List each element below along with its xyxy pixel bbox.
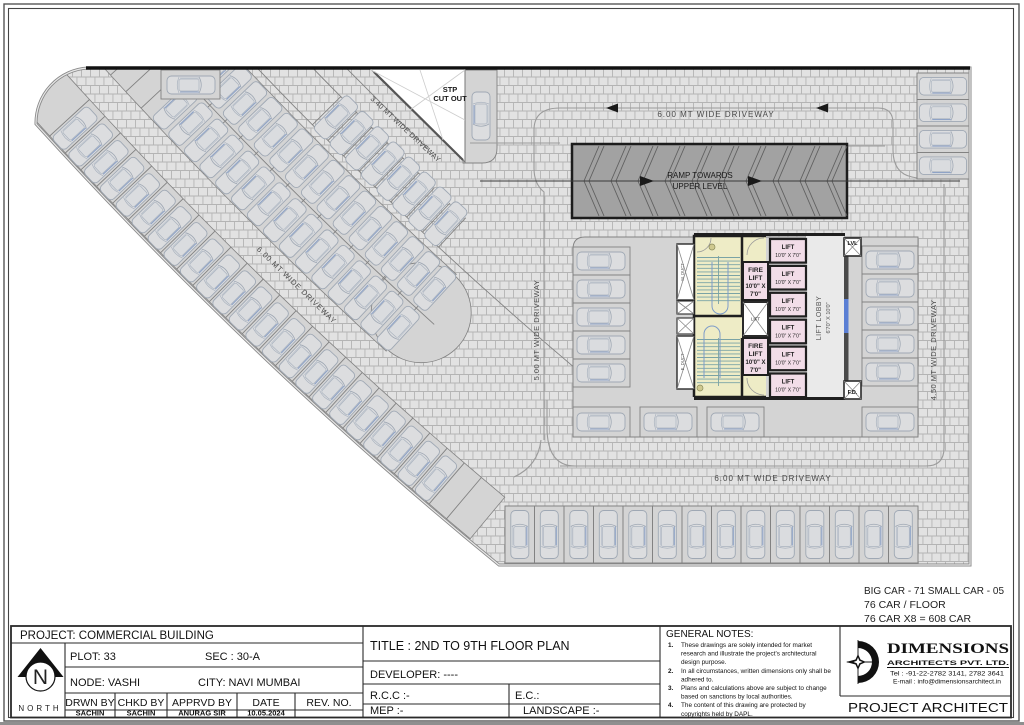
svg-text:10'0" X 7'0": 10'0" X 7'0" (775, 307, 801, 313)
svg-text:2.: 2. (668, 668, 674, 675)
svg-text:10'0" X 7'0": 10'0" X 7'0" (775, 253, 801, 259)
svg-text:Tel : -91-22-2782 3141, 2782 3: Tel : -91-22-2782 3141, 2782 3641 (890, 671, 1005, 678)
svg-text:F.D.: F.D. (848, 390, 858, 396)
svg-text:NORTH: NORTH (18, 704, 61, 713)
svg-text:LANDSCAPE :-: LANDSCAPE :- (523, 705, 600, 717)
svg-text:Plans and calculations above a: Plans and calculations above are subject… (681, 685, 827, 692)
svg-text:4.: 4. (668, 702, 674, 709)
svg-text:LIFT LOBBY: LIFT LOBBY (816, 296, 823, 341)
svg-text:CITY: NAVI MUMBAI: CITY: NAVI MUMBAI (198, 677, 300, 689)
svg-text:FIRE: FIRE (748, 343, 763, 350)
svg-text:PROJECT: COMMERCIAL BUILDING: PROJECT: COMMERCIAL BUILDING (20, 630, 214, 642)
svg-text:CHKD BY: CHKD BY (118, 697, 165, 709)
svg-text:SACHIN: SACHIN (127, 709, 156, 718)
svg-text:DIMENSIONS: DIMENSIONS (887, 641, 1009, 657)
svg-text:3.: 3. (668, 685, 674, 692)
svg-text:6.00 MT WIDE DRIVEWAY: 6.00 MT WIDE DRIVEWAY (657, 110, 774, 119)
svg-text:10'0" X: 10'0" X (746, 360, 766, 366)
svg-text:PLOT: 33: PLOT: 33 (70, 651, 116, 663)
svg-text:LIFT: LIFT (782, 353, 795, 359)
svg-text:1.: 1. (668, 642, 674, 649)
svg-text:DRWN BY: DRWN BY (65, 697, 114, 709)
svg-text:4.50 MT WIDE DRIVEWAY: 4.50 MT WIDE DRIVEWAY (929, 300, 938, 401)
svg-text:LIFT: LIFT (782, 380, 795, 386)
svg-text:STP: STP (443, 85, 458, 94)
svg-text:design purpose.: design purpose. (681, 659, 727, 666)
svg-text:10'0" X 7'0": 10'0" X 7'0" (775, 361, 801, 367)
svg-text:In all circumstances, written: In all circumstances, written dimensions… (681, 668, 831, 675)
svg-text:7'0": 7'0" (750, 292, 761, 298)
svg-text:LIFT: LIFT (782, 326, 795, 332)
svg-text:LIFT: LIFT (751, 317, 761, 322)
svg-text:E.C.:: E.C.: (515, 690, 539, 702)
svg-text:LIFT: LIFT (749, 275, 763, 282)
svg-text:7'0": 7'0" (750, 368, 761, 374)
svg-text:10'0" X 7'0": 10'0" X 7'0" (775, 388, 801, 394)
svg-text:FIRE: FIRE (748, 267, 763, 274)
svg-text:LVL: LVL (848, 241, 859, 247)
svg-text:LIFT: LIFT (749, 351, 763, 358)
svg-text:The content of this drawing ar: The content of this drawing are protecte… (681, 702, 806, 709)
svg-text:TITLE : 2ND TO 9TH FLOOR PLAN: TITLE : 2ND TO 9TH FLOOR PLAN (370, 639, 570, 653)
svg-text:76 CAR X8 = 608 CAR: 76 CAR X8 = 608 CAR (864, 613, 972, 625)
svg-text:based on sanctions by local au: based on sanctions by local authorities. (681, 694, 793, 701)
svg-text:6'70" X 10'0": 6'70" X 10'0" (826, 302, 832, 333)
svg-text:These drawings are solely inte: These drawings are solely intended for m… (681, 642, 812, 649)
svg-text:MEP :-: MEP :- (370, 705, 404, 717)
svg-text:NODE: VASHI: NODE: VASHI (70, 677, 140, 689)
svg-text:research and illustrate the pr: research and illustrate the project's ar… (681, 651, 817, 658)
svg-text:PROJECT ARCHITECT: PROJECT ARCHITECT (848, 700, 1008, 715)
svg-text:SACHIN: SACHIN (76, 709, 105, 718)
svg-text:copyrights held by DAPL.: copyrights held by DAPL. (681, 711, 753, 718)
svg-text:M. DUCT: M. DUCT (680, 263, 685, 281)
svg-text:LIFT: LIFT (782, 272, 795, 278)
svg-text:BIG CAR - 71 SMALL CAR - 05: BIG CAR - 71 SMALL CAR - 05 (864, 585, 1004, 597)
svg-text:6.00 MT WIDE DRIVEWAY: 6.00 MT WIDE DRIVEWAY (714, 474, 831, 483)
svg-text:APPRVD BY: APPRVD BY (172, 697, 232, 709)
svg-text:10'0" X 7'0": 10'0" X 7'0" (775, 280, 801, 286)
svg-text:ANURAG SIR: ANURAG SIR (178, 709, 226, 718)
svg-text:10.05.2024: 10.05.2024 (247, 709, 285, 718)
svg-text:LIFT: LIFT (782, 245, 795, 251)
svg-text:E-mail : info@dimensionsarch: E-mail : info@dimensionsarchitect.in (893, 679, 1002, 686)
svg-text:DATE: DATE (252, 697, 279, 709)
svg-text:ARCHITECTS PVT. LTD.: ARCHITECTS PVT. LTD. (887, 660, 1009, 667)
svg-text:R.C.C :-: R.C.C :- (370, 690, 410, 702)
svg-text:CUT OUT: CUT OUT (433, 94, 467, 103)
svg-text:GENERAL NOTES:: GENERAL NOTES: (666, 629, 753, 640)
svg-text:UPPER LEVEL: UPPER LEVEL (673, 182, 728, 191)
svg-text:DEVELOPER: ----: DEVELOPER: ---- (370, 669, 458, 681)
svg-text:76 CAR / FLOOR: 76 CAR / FLOOR (864, 599, 946, 611)
svg-text:10'0" X 7'0": 10'0" X 7'0" (775, 334, 801, 340)
svg-text:N: N (33, 666, 48, 689)
svg-text:REV. NO.: REV. NO. (306, 697, 351, 709)
svg-text:RAMP TOWARDS: RAMP TOWARDS (667, 171, 733, 180)
svg-text:SEC : 30-A: SEC : 30-A (205, 651, 261, 663)
svg-text:E. DUCT: E. DUCT (680, 353, 685, 370)
svg-text:10'0" X: 10'0" X (746, 284, 766, 290)
svg-text:adhered to.: adhered to. (681, 676, 714, 683)
svg-text:5.00 MT WIDE DRIVEWAY: 5.00 MT WIDE DRIVEWAY (532, 280, 541, 381)
svg-text:LIFT: LIFT (782, 299, 795, 305)
